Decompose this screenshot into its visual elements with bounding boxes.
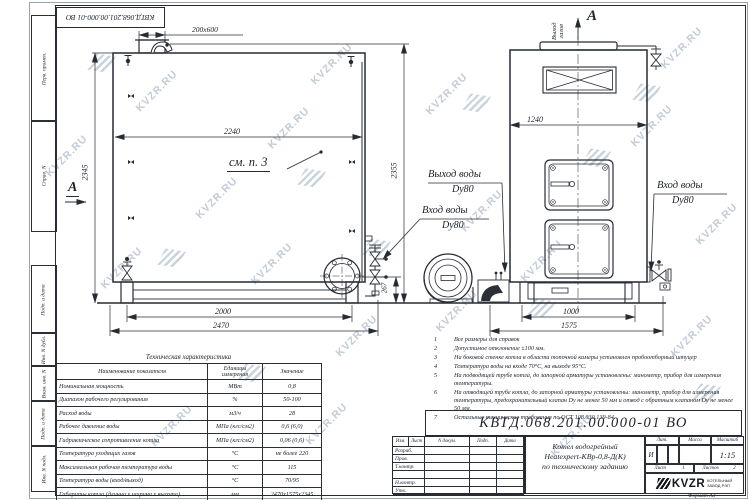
view-a-label: А xyxy=(587,8,597,25)
dim-chimney-size: 200x600 xyxy=(192,25,218,34)
dim-total-length: 2470 xyxy=(213,321,229,330)
spec-cell-units: °С xyxy=(208,474,263,488)
kvzr-logo: KVZR КОТЕЛЬНЫЙ ЗАВОД РЭП xyxy=(657,478,732,490)
section-a-label: А xyxy=(66,180,79,197)
note-number: 2 xyxy=(434,345,437,353)
mass-header: Масса xyxy=(679,436,711,445)
company-cell: KVZR КОТЕЛЬНЫЙ ЗАВОД РЭП xyxy=(645,473,744,494)
spec-row: Рабочее давление водыМПа (кгс/см2)0,6 (6… xyxy=(57,420,322,434)
spec-cell-name: Температура уходящих газов xyxy=(57,447,208,461)
spec-cell-name: Диапазон рабочего регулирования xyxy=(57,393,208,407)
note-text: Температура воды на входе 70°С, на выход… xyxy=(454,363,586,370)
note-item: 4Температура воды на входе 70°С, на выхо… xyxy=(432,363,738,371)
note-text: На отводящей трубе котла, до запорной ар… xyxy=(454,389,733,412)
spec-row: Расход водым3/ч28 xyxy=(57,407,322,421)
item-description: Котел водогрейный Heatexpert-КВр-0,8-Д(К… xyxy=(525,436,645,494)
dim-body-width: 2240 xyxy=(224,127,240,136)
spec-cell-value: 0,06 (0,6) xyxy=(263,434,322,448)
note-number: 4 xyxy=(434,363,437,371)
dim-front-total: 1575 xyxy=(561,321,577,330)
sheet-cell: Лист 1 xyxy=(645,464,694,473)
spec-table-block: Техническая характеристика Наименование … xyxy=(56,354,321,500)
spec-row: Диапазон рабочего регулирования%50-100 xyxy=(57,393,322,407)
sig-cell xyxy=(425,471,470,479)
sig-cell xyxy=(497,479,524,487)
sig-col-list: Лист xyxy=(409,437,425,447)
sig-cell xyxy=(470,455,497,463)
sig-col-data: Дата xyxy=(497,437,524,447)
sig-cell xyxy=(470,479,497,487)
spec-cell-name: Максимальная рабочая температура воды xyxy=(57,461,208,475)
spec-cell-units: °С xyxy=(208,447,263,461)
note-number: 5 xyxy=(434,372,437,380)
note-number: 3 xyxy=(434,354,437,362)
note-item: 1Все размеры для справок xyxy=(432,336,738,344)
sheet-label: Лист xyxy=(654,466,666,471)
sig-row-tkontr: Т.контр. xyxy=(393,463,425,471)
boiler-front-view xyxy=(510,18,661,312)
mass-value-cell xyxy=(679,445,711,464)
sheets-cell: Листов 2 xyxy=(694,464,744,473)
water-inlet-label: Вход воды xyxy=(422,205,468,216)
dim-front-width: 1240 xyxy=(527,115,543,124)
scale-header: Масштаб xyxy=(711,436,744,445)
sig-row-nkontr: Н.контр. xyxy=(393,479,425,487)
sig-cell xyxy=(425,479,470,487)
note-text: На боковой стенке котла в области топочн… xyxy=(454,354,697,361)
spec-row: Номинальная мощностьМВт0,8 xyxy=(57,380,322,394)
sheet-value: 1 xyxy=(682,466,685,471)
dim-height-left: 2345 xyxy=(81,165,90,181)
note-item: 2Допустимое отклонение ±100 мм. xyxy=(432,345,738,353)
signature-table: Изм. Лист N докум. Подп. Дата Разраб. Пр… xyxy=(392,436,525,494)
sig-row-utv: Утв. xyxy=(393,487,425,495)
spec-cell-units: % xyxy=(208,393,263,407)
spec-row: Гидравлическое сопротивление котлаМПа (к… xyxy=(57,434,322,448)
sig-cell xyxy=(470,463,497,471)
description-line2: Heatexpert-КВр-0,8-Д(К) xyxy=(526,452,644,462)
spec-cell-units: °С xyxy=(208,461,263,475)
sig-cell xyxy=(425,455,470,463)
drawing-sheet: KVZR.RU KVZR.RU KVZR.RU KVZR.RU KVZR.RU … xyxy=(0,0,750,500)
water-inlet-dn: Dy80 xyxy=(442,220,464,231)
format-label: Формат А3 xyxy=(688,493,715,499)
sheets-label: Листов xyxy=(702,466,718,471)
sig-col-podp: Подп. xyxy=(470,437,497,447)
spec-row: Максимальная рабочая температура воды°С1… xyxy=(57,461,322,475)
sig-cell xyxy=(497,463,524,471)
spec-cell-name: Расход воды xyxy=(57,407,208,421)
sig-cell xyxy=(470,487,497,495)
sig-cell xyxy=(497,471,524,479)
doc-number-box: КВТД.068.201.00.000-01 ВО xyxy=(425,410,742,436)
dim-front-base: 1000 xyxy=(563,307,579,316)
spec-header-row: Наименование показателя Единицы измерени… xyxy=(57,364,322,380)
company-name-line2: ЗАВОД РЭП xyxy=(707,484,732,489)
sig-cell xyxy=(470,447,497,455)
note-number: 6 xyxy=(434,389,437,397)
kvzr-logo-icon xyxy=(656,478,671,489)
spec-cell-value: не более 220 xyxy=(263,447,322,461)
sig-row-prov: Пров. xyxy=(393,455,425,463)
dim-height-right: 2355 xyxy=(390,163,399,179)
note-item: 5На подводящей трубе котла, до запорной … xyxy=(432,372,738,388)
lit-cell-3 xyxy=(668,445,679,464)
spec-cell-value: 0,8 xyxy=(263,380,322,394)
spec-cell-value: 0,6 (6,0) xyxy=(263,420,322,434)
water-inlet-right-dn: Dy80 xyxy=(672,195,694,206)
spec-row: Температура воды (вход/выход)°С70/95 xyxy=(57,474,322,488)
kvzr-logo-text: KVZR xyxy=(672,478,705,490)
title-block-right-grid: Лит. Масса Масштаб И 1:15 Лист 1 Листов … xyxy=(645,436,744,494)
sig-cell xyxy=(497,447,524,455)
lit-value-cell: И xyxy=(645,445,657,464)
gas-outlet-line2: газов xyxy=(558,22,565,40)
spec-cell-value: 50-100 xyxy=(263,393,322,407)
spec-cell-name: Температура воды (вход/выход) xyxy=(57,474,208,488)
sig-row-empty xyxy=(393,471,425,479)
sig-row-razrab: Разраб. xyxy=(393,447,425,455)
sig-cell xyxy=(425,463,470,471)
title-block: КВТД.068.201.00.000-01 ВО Изм. Лист N до… xyxy=(392,410,744,494)
note-number: 1 xyxy=(434,336,437,344)
spec-cell-value: 2470х1575х2345 xyxy=(263,488,322,500)
spec-table-title: Техническая характеристика xyxy=(56,354,321,361)
see-note-ref: см. п. 3 xyxy=(227,155,270,172)
lit-cell-2 xyxy=(657,445,668,464)
spec-cell-value: 28 xyxy=(263,407,322,421)
spec-cell-name: Габариты котла (длинна х ширина х высота… xyxy=(57,488,208,500)
gas-outlet-label: Выход газов xyxy=(551,22,565,40)
spec-header-value: Значение xyxy=(263,364,322,380)
blower-fan xyxy=(424,254,509,303)
spec-header-units: Единицы измерения xyxy=(208,364,263,380)
spec-cell-units: мм xyxy=(208,488,263,500)
water-outlet-dn: Dy80 xyxy=(452,184,474,195)
note-text: Допустимое отклонение ±100 мм. xyxy=(454,345,545,352)
sheets-value: 2 xyxy=(733,466,736,471)
sig-cell xyxy=(497,455,524,463)
sig-col-izm: Изм. xyxy=(393,437,409,447)
water-inlet-right-label: Вход воды xyxy=(657,180,703,191)
water-outlet-label: Выход воды xyxy=(428,169,481,180)
spec-cell-value: 70/95 xyxy=(263,474,322,488)
spec-cell-value: 115 xyxy=(263,461,322,475)
spec-cell-units: м3/ч xyxy=(208,407,263,421)
spec-cell-units: МПа (кгс/см2) xyxy=(208,420,263,434)
spec-cell-name: Номинальная мощность xyxy=(57,380,208,394)
note-text: Все размеры для справок xyxy=(454,336,520,343)
spec-cell-units: МПа (кгс/см2) xyxy=(208,434,263,448)
spec-row: Температура уходящих газов°Сне более 220 xyxy=(57,447,322,461)
doc-number: КВТД.068.201.00.000-01 ВО xyxy=(479,415,688,432)
sig-cell xyxy=(497,487,524,495)
dim-pipe-height: 267 xyxy=(380,283,388,294)
lit-header: Лит. xyxy=(645,436,679,445)
sig-cell xyxy=(425,487,470,495)
description-line3: по техническому заданию xyxy=(526,462,644,472)
scale-value-cell: 1:15 xyxy=(711,445,744,464)
sig-cell xyxy=(470,471,497,479)
spec-header-name: Наименование показателя xyxy=(57,364,208,380)
furnace-doors xyxy=(545,160,613,278)
note-text: На подводящей трубе котла, до запорной а… xyxy=(454,372,721,387)
gas-outlet-line1: Выход xyxy=(551,22,558,40)
spec-table: Наименование показателя Единицы измерени… xyxy=(56,363,322,500)
spec-cell-name: Гидравлическое сопротивление котла xyxy=(57,434,208,448)
dim-base-span: 2000 xyxy=(215,307,231,316)
sig-col-ndokum: N докум. xyxy=(425,437,470,447)
spec-cell-units: МВт xyxy=(208,380,263,394)
spec-row: Габариты котла (длинна х ширина х высота… xyxy=(57,488,322,500)
description-line1: Котел водогрейный xyxy=(526,442,644,452)
sig-cell xyxy=(425,447,470,455)
spec-cell-name: Рабочее давление воды xyxy=(57,420,208,434)
note-item: 3На боковой стенке котла в области топоч… xyxy=(432,354,738,362)
company-name: КОТЕЛЬНЫЙ ЗАВОД РЭП xyxy=(707,479,732,488)
